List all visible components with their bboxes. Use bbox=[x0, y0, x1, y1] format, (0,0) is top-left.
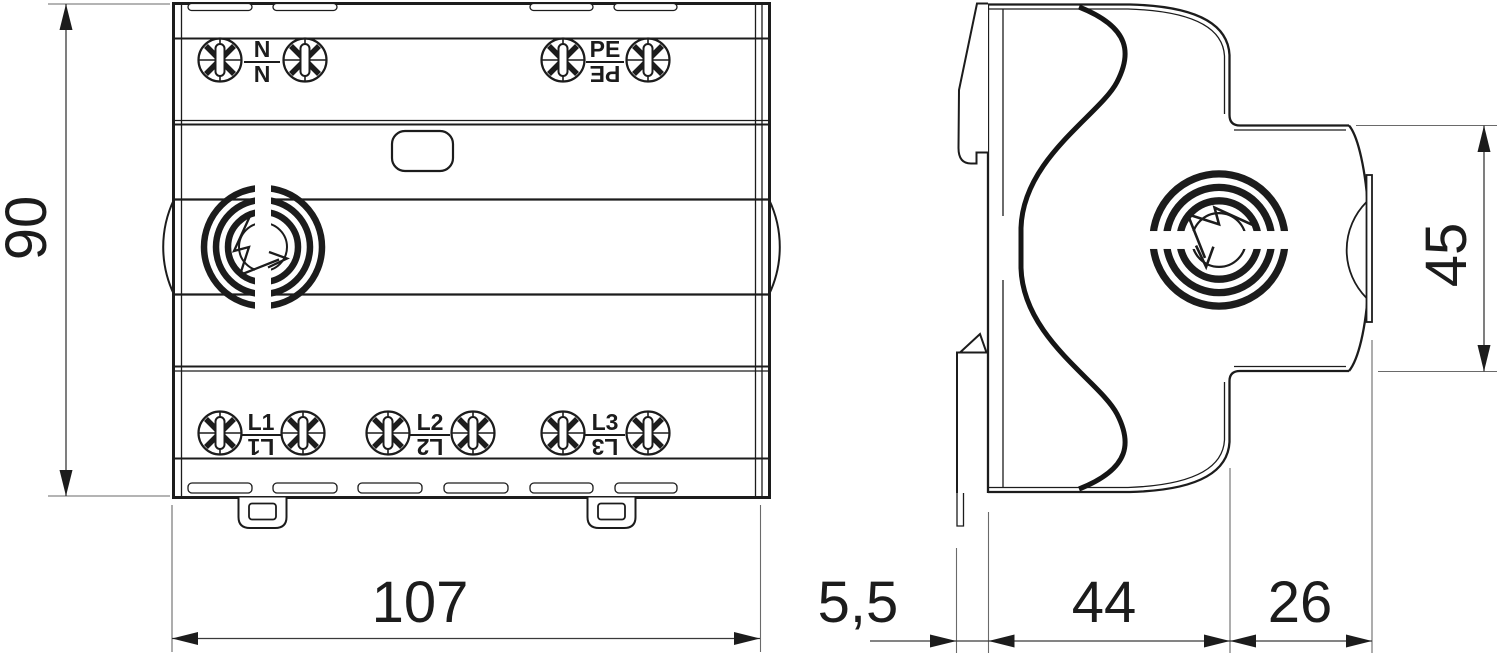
terminal-screw-icon bbox=[367, 412, 410, 455]
side-rail-spring-clip bbox=[960, 334, 987, 353]
drawing-canvas: N N PE PE L1 L1 L2 L2 L3 L3 bbox=[0, 0, 1500, 656]
terminal-screw-icon bbox=[542, 412, 585, 455]
dimension-arrowhead bbox=[1346, 635, 1372, 648]
clip-hole bbox=[598, 504, 625, 520]
dimension-arrowhead bbox=[930, 635, 957, 648]
terminal-screw-icon bbox=[627, 412, 670, 455]
side-rail-release-tab bbox=[957, 493, 964, 526]
label-text-mirrored: N bbox=[254, 61, 271, 87]
side-view bbox=[957, 4, 1372, 527]
technical-drawing: N N PE PE L1 L1 L2 L2 L3 L3 bbox=[0, 0, 1500, 656]
front-view: N N PE PE L1 L1 L2 L2 L3 L3 bbox=[163, 4, 780, 529]
dimension-arrowhead bbox=[734, 632, 760, 645]
dimension-arrowhead bbox=[1478, 126, 1491, 153]
dimension-arrowhead bbox=[1478, 345, 1491, 372]
dimension-arrowhead bbox=[60, 4, 73, 30]
side-front-bump bbox=[1347, 202, 1367, 298]
dim-front-height: 90 bbox=[0, 4, 170, 496]
dimension-label: 45 bbox=[1414, 223, 1479, 288]
side-rail-foot bbox=[957, 353, 988, 494]
label-text-mirrored: L1 bbox=[247, 434, 274, 460]
label-text: PE bbox=[590, 36, 621, 62]
dimension-arrowhead bbox=[172, 632, 198, 645]
dimension-label: 90 bbox=[0, 196, 59, 261]
label-text: N bbox=[254, 36, 271, 62]
label-text-mirrored: L3 bbox=[592, 434, 619, 460]
terminal-screw-icon bbox=[199, 412, 242, 455]
side-rail-tab bbox=[959, 4, 989, 164]
clip-hole bbox=[249, 504, 276, 520]
terminal-screw-icon bbox=[284, 39, 327, 82]
dimension-arrowhead bbox=[989, 635, 1015, 648]
terminal-screw-icon bbox=[282, 412, 325, 455]
dimension-label: 44 bbox=[1072, 570, 1137, 635]
terminal-label-pe: PE PE bbox=[586, 36, 624, 87]
dim-module-height: 45 bbox=[1356, 126, 1497, 372]
label-text: L1 bbox=[248, 409, 275, 435]
terminal-screw-icon bbox=[542, 39, 585, 82]
dimension-label: 5,5 bbox=[818, 570, 899, 635]
terminal-screw-icon bbox=[452, 412, 495, 455]
dimension-arrowhead bbox=[60, 470, 73, 496]
side-body-contour bbox=[1021, 7, 1125, 489]
label-text-mirrored: PE bbox=[590, 61, 621, 87]
side-outline-bottom bbox=[988, 371, 1349, 492]
terminal-screw-icon bbox=[199, 39, 242, 82]
label-text-mirrored: L2 bbox=[417, 434, 444, 460]
surge-arrester-logo-icon bbox=[1143, 174, 1295, 306]
din-rail-clip-right bbox=[588, 498, 636, 529]
label-window bbox=[392, 131, 453, 171]
side-outline-top bbox=[988, 5, 1349, 126]
dimension-label: 26 bbox=[1268, 570, 1333, 635]
dimension-arrowhead bbox=[1230, 635, 1256, 648]
label-text: L3 bbox=[592, 409, 619, 435]
dimension-arrowhead bbox=[1204, 635, 1230, 648]
label-text: L2 bbox=[417, 409, 444, 435]
terminal-screw-icon bbox=[627, 39, 670, 82]
din-rail-clip-left bbox=[239, 498, 287, 529]
dimension-label: 107 bbox=[372, 570, 469, 635]
side-front-plate bbox=[1367, 175, 1373, 322]
